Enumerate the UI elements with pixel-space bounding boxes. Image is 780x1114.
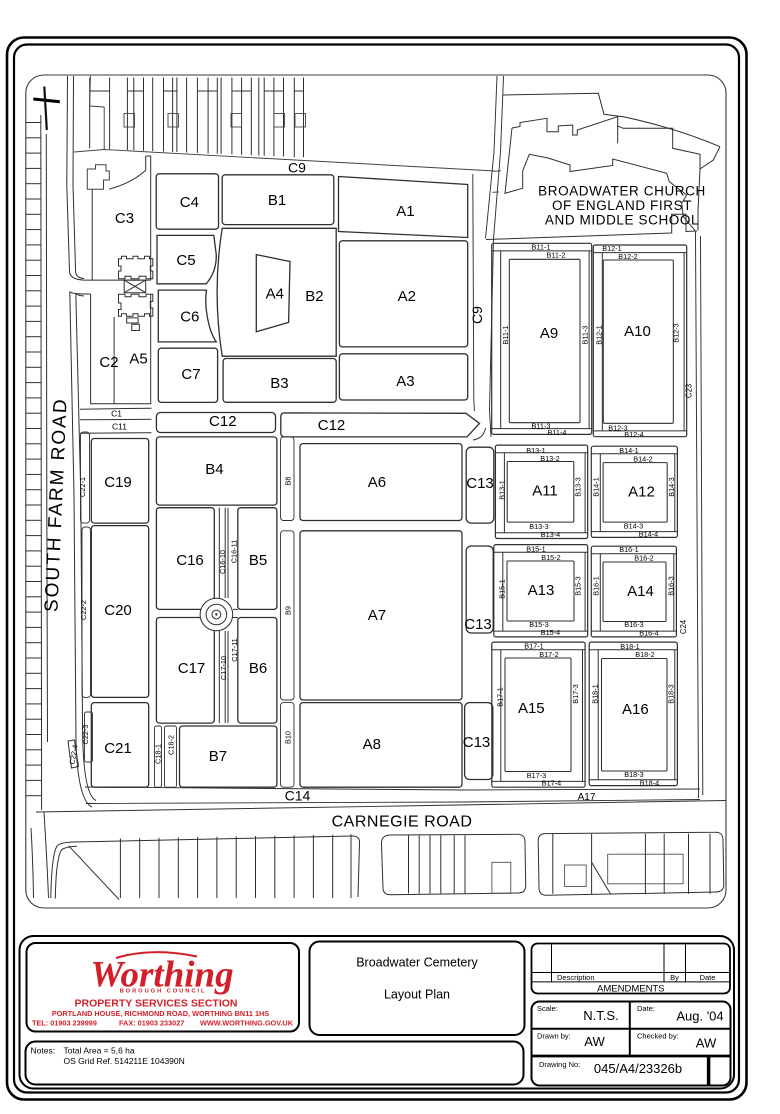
svg-text:C11: C11 (112, 422, 127, 432)
svg-text:C12: C12 (318, 417, 346, 434)
svg-text:B17-2: B17-2 (539, 650, 558, 659)
svg-text:B14-1: B14-1 (592, 477, 601, 496)
svg-text:WWW.WORTHING.GOV.UK: WWW.WORTHING.GOV.UK (200, 1018, 294, 1027)
svg-text:Drawn by:: Drawn by: (537, 1031, 571, 1040)
svg-text:B18-4: B18-4 (640, 778, 659, 787)
svg-text:B6: B6 (249, 660, 267, 677)
svg-text:C18-2: C18-2 (167, 735, 176, 755)
svg-text:C13: C13 (466, 475, 494, 492)
svg-text:C19: C19 (104, 474, 132, 491)
svg-text:Aug. '04: Aug. '04 (676, 1009, 723, 1024)
svg-text:C14: C14 (285, 788, 311, 804)
svg-text:B17-1: B17-1 (496, 687, 505, 706)
svg-text:C18-1: C18-1 (154, 744, 163, 764)
svg-text:B18-1: B18-1 (591, 684, 600, 703)
svg-text:A7: A7 (368, 607, 386, 624)
svg-text:B15-2: B15-2 (541, 553, 560, 562)
svg-text:A15: A15 (518, 700, 545, 717)
svg-text:C17-11: C17-11 (230, 638, 239, 661)
svg-text:C9: C9 (288, 159, 306, 175)
svg-text:C9: C9 (469, 306, 485, 324)
svg-text:BROADWATER CHURCH: BROADWATER CHURCH (538, 184, 706, 199)
svg-text:Checked by:: Checked by: (637, 1031, 679, 1040)
svg-text:Drawing No:: Drawing No: (539, 1060, 580, 1069)
svg-text:CARNEGIE ROAD: CARNEGIE ROAD (332, 814, 473, 831)
svg-text:AMENDMENTS: AMENDMENTS (597, 984, 665, 995)
svg-text:Description: Description (557, 973, 595, 982)
svg-text:B7: B7 (209, 748, 227, 765)
svg-text:OS Grid Ref. 514211E 104390N: OS Grid Ref. 514211E 104390N (64, 1056, 185, 1066)
svg-text:C13: C13 (463, 734, 491, 751)
svg-text:A10: A10 (624, 323, 651, 340)
svg-text:N.T.S.: N.T.S. (583, 1008, 618, 1023)
svg-text:C13: C13 (464, 616, 492, 633)
svg-text:A4: A4 (266, 286, 284, 303)
svg-text:C6: C6 (180, 309, 199, 326)
svg-text:B13-3: B13-3 (574, 477, 583, 496)
svg-text:A16: A16 (622, 701, 649, 718)
svg-text:TEL: 01903 239999: TEL: 01903 239999 (32, 1018, 97, 1027)
svg-text:B5: B5 (249, 552, 267, 569)
svg-text:B4: B4 (205, 461, 223, 478)
svg-text:By: By (670, 973, 679, 982)
svg-text:B12-2: B12-2 (618, 252, 637, 261)
svg-text:B15-1: B15-1 (498, 579, 507, 598)
svg-text:B16-3: B16-3 (667, 576, 676, 595)
svg-text:AW: AW (584, 1034, 605, 1049)
svg-text:OF ENGLAND FIRST: OF ENGLAND FIRST (552, 198, 692, 213)
svg-text:Notes:: Notes: (31, 1046, 56, 1056)
svg-text:045/A4/23326b: 045/A4/23326b (594, 1061, 682, 1076)
svg-text:B16-2: B16-2 (634, 554, 653, 563)
svg-text:B15-3: B15-3 (574, 576, 583, 595)
svg-text:B8: B8 (283, 477, 292, 486)
svg-text:A3: A3 (396, 373, 414, 390)
svg-text:AW: AW (696, 1036, 717, 1051)
svg-text:C24: C24 (679, 619, 688, 634)
svg-text:B13-2: B13-2 (540, 454, 559, 463)
svg-text:C21: C21 (104, 740, 132, 757)
svg-text:B9: B9 (283, 606, 292, 615)
svg-text:B17-3: B17-3 (571, 684, 580, 703)
svg-text:A11: A11 (532, 483, 558, 500)
svg-text:C7: C7 (181, 366, 200, 383)
svg-text:C12: C12 (209, 413, 237, 430)
svg-text:B1: B1 (268, 192, 286, 209)
svg-text:C22-1: C22-1 (78, 477, 87, 497)
svg-text:Layout Plan: Layout Plan (384, 987, 450, 1001)
svg-text:C22-2: C22-2 (79, 600, 88, 620)
svg-text:Scale:: Scale: (537, 1004, 558, 1013)
svg-text:A14: A14 (627, 583, 654, 600)
svg-text:B14-3: B14-3 (667, 477, 676, 496)
svg-text:A13: A13 (528, 582, 555, 599)
svg-text:B14-2: B14-2 (633, 455, 652, 464)
svg-text:C16-11: C16-11 (230, 540, 239, 563)
svg-text:B2: B2 (305, 288, 323, 305)
svg-text:C20: C20 (104, 602, 132, 619)
svg-text:BOROUGH COUNCIL: BOROUGH COUNCIL (120, 989, 207, 995)
svg-text:AND MIDDLE SCHOOL: AND MIDDLE SCHOOL (545, 213, 699, 228)
svg-text:A12: A12 (628, 484, 655, 501)
svg-text:C22-3: C22-3 (81, 725, 90, 745)
svg-text:C23: C23 (685, 384, 694, 398)
svg-text:B11-2: B11-2 (547, 250, 566, 259)
svg-text:A1: A1 (396, 203, 414, 220)
svg-text:A2: A2 (398, 288, 416, 305)
svg-text:C17: C17 (178, 660, 206, 677)
svg-text:A5: A5 (129, 351, 147, 368)
svg-text:B12-3: B12-3 (672, 323, 681, 342)
svg-text:FAX: 01903 233027: FAX: 01903 233027 (119, 1018, 184, 1027)
svg-text:B11-4: B11-4 (548, 428, 567, 437)
svg-text:B12-1: B12-1 (595, 325, 604, 344)
svg-text:C16: C16 (176, 552, 204, 569)
svg-text:B16-1: B16-1 (592, 576, 601, 595)
svg-text:A8: A8 (363, 736, 381, 753)
svg-text:B18-2: B18-2 (635, 650, 654, 659)
svg-text:Broadwater Cemetery: Broadwater Cemetery (356, 955, 478, 969)
svg-text:B16-4: B16-4 (639, 628, 658, 637)
svg-text:B17-4: B17-4 (542, 779, 561, 788)
svg-text:B15-4: B15-4 (541, 628, 560, 637)
svg-text:Date: Date (700, 973, 716, 982)
svg-text:C1: C1 (111, 409, 122, 419)
svg-text:B14-4: B14-4 (639, 529, 658, 538)
svg-text:B13-1: B13-1 (498, 480, 507, 499)
svg-text:B11-3: B11-3 (581, 326, 590, 345)
svg-text:Total Area = 5,6 ha: Total Area = 5,6 ha (64, 1046, 135, 1056)
svg-text:C17-10: C17-10 (219, 656, 228, 680)
svg-text:A9: A9 (540, 325, 558, 342)
svg-text:B10: B10 (283, 731, 292, 744)
svg-text:B3: B3 (270, 375, 288, 392)
svg-text:B18-3: B18-3 (667, 684, 676, 703)
svg-text:A6: A6 (368, 474, 386, 491)
svg-text:A17: A17 (578, 792, 596, 803)
svg-text:Date:: Date: (637, 1004, 655, 1013)
svg-text:C4: C4 (180, 194, 199, 211)
svg-text:B11-1: B11-1 (501, 326, 510, 345)
svg-text:C16-10: C16-10 (218, 550, 227, 574)
svg-text:PORTLAND HOUSE, RICHMOND ROAD,: PORTLAND HOUSE, RICHMOND ROAD, WORTHING … (52, 1009, 269, 1018)
svg-text:C5: C5 (176, 252, 195, 269)
svg-text:PROPERTY SERVICES SECTION: PROPERTY SERVICES SECTION (75, 997, 238, 1009)
svg-text:C2: C2 (99, 354, 118, 371)
svg-text:B12-4: B12-4 (624, 430, 643, 439)
svg-text:C3: C3 (115, 210, 134, 227)
svg-text:B13-4: B13-4 (541, 530, 560, 539)
